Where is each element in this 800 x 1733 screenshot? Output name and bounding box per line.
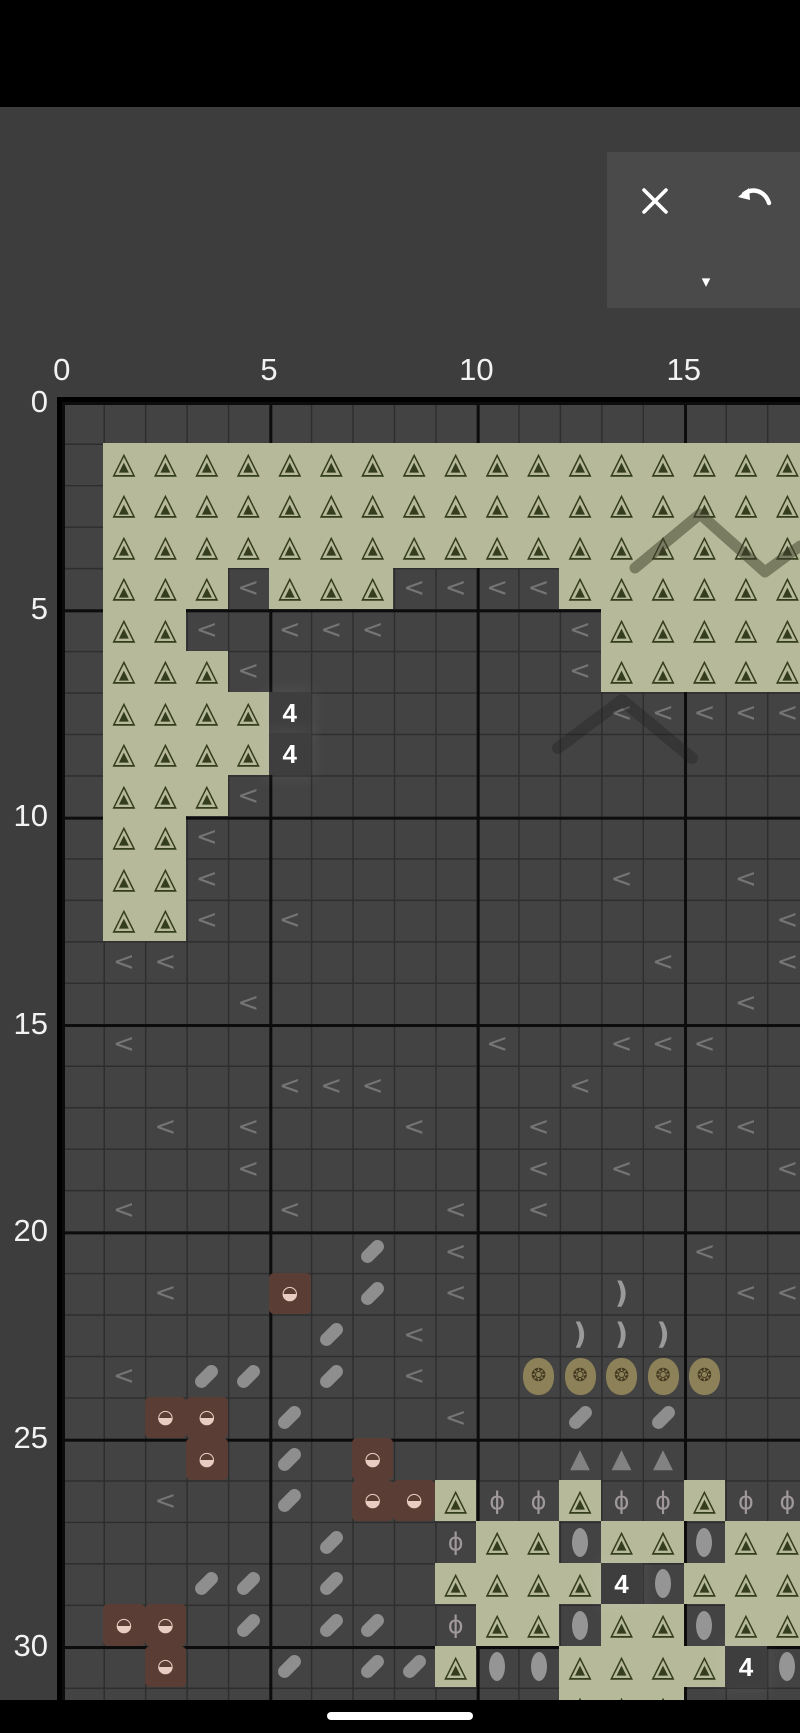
lt-stitch-cell[interactable]: < — [518, 568, 559, 609]
tree-stitch-cell[interactable]: △▲ — [476, 1563, 517, 1604]
tree-stitch-cell[interactable]: △▲ — [684, 485, 725, 526]
tree-stitch-cell[interactable]: △▲ — [393, 443, 434, 484]
phi-stitch-cell[interactable]: ϕ — [435, 1521, 476, 1562]
lt-stitch-cell[interactable]: < — [228, 568, 269, 609]
tree-stitch-cell[interactable]: △▲ — [435, 485, 476, 526]
lt-stitch-cell[interactable]: < — [684, 1231, 725, 1272]
lt-stitch-cell[interactable]: < — [476, 1024, 517, 1065]
pill-stitch-cell[interactable] — [559, 1397, 600, 1438]
lt-stitch-cell[interactable]: < — [228, 651, 269, 692]
gtri-stitch-cell[interactable]: ▲ — [642, 1438, 683, 1479]
column-label: 10 — [444, 352, 508, 388]
tree-stitch-cell[interactable]: △▲ — [145, 899, 186, 940]
home-indicator[interactable] — [327, 1712, 473, 1720]
tree-stitch-cell[interactable]: △▲ — [725, 1521, 766, 1562]
oval-stitch-cell[interactable] — [684, 1521, 725, 1562]
undo-arrow-icon — [734, 186, 774, 221]
basket-stitch-cell[interactable]: ◒ — [269, 1273, 310, 1314]
lt-stitch-cell[interactable]: < — [725, 982, 766, 1023]
tree-stitch-cell[interactable]: △▲ — [559, 1563, 600, 1604]
count-stitch-cell[interactable]: 4 — [601, 1563, 642, 1604]
tree-stitch-cell[interactable]: △▲ — [642, 443, 683, 484]
pill-stitch-cell[interactable] — [311, 1604, 352, 1645]
tree-stitch-cell[interactable]: △▲ — [559, 568, 600, 609]
basket-stitch-cell[interactable]: ◒ — [145, 1646, 186, 1687]
tree-stitch-cell[interactable]: △▲ — [393, 485, 434, 526]
basket-stitch-cell[interactable]: ◒ — [145, 1604, 186, 1645]
pill-stitch-cell[interactable] — [228, 1604, 269, 1645]
flower-stitch-cell[interactable]: ❂ — [559, 1355, 600, 1396]
tree-stitch-cell[interactable]: △▲ — [103, 816, 144, 857]
gtri-stitch-cell[interactable]: ▲ — [559, 1438, 600, 1479]
lt-stitch-cell[interactable]: < — [642, 1024, 683, 1065]
tree-stitch-cell[interactable]: △▲ — [103, 526, 144, 567]
basket-stitch-cell[interactable]: ◒ — [186, 1438, 227, 1479]
lt-stitch-cell[interactable]: < — [145, 1480, 186, 1521]
lt-stitch-cell[interactable]: < — [186, 858, 227, 899]
lt-stitch-cell[interactable]: < — [559, 609, 600, 650]
lt-stitch-cell[interactable]: < — [435, 568, 476, 609]
pill-stitch-cell[interactable] — [228, 1355, 269, 1396]
tree-stitch-cell[interactable]: △▲ — [269, 485, 310, 526]
pill-stitch-cell[interactable] — [269, 1480, 310, 1521]
tree-stitch-cell[interactable]: △▲ — [684, 1646, 725, 1687]
tree-stitch-cell[interactable]: △▲ — [767, 568, 800, 609]
row-label: 15 — [0, 1006, 48, 1042]
tree-stitch-cell[interactable]: △▲ — [642, 526, 683, 567]
lt-stitch-cell[interactable]: < — [684, 1024, 725, 1065]
lt-stitch-cell[interactable]: < — [767, 899, 800, 940]
tree-stitch-cell[interactable]: △▲ — [145, 775, 186, 816]
tree-stitch-cell[interactable]: △▲ — [103, 651, 144, 692]
lt-stitch-cell[interactable]: < — [145, 1107, 186, 1148]
lt-stitch-cell[interactable]: < — [601, 1024, 642, 1065]
pill-stitch-cell[interactable] — [186, 1355, 227, 1396]
tree-stitch-cell[interactable]: △▲ — [186, 485, 227, 526]
lt-stitch-cell[interactable]: < — [269, 1190, 310, 1231]
tree-stitch-cell[interactable]: △▲ — [186, 526, 227, 567]
tree-stitch-cell[interactable]: △▲ — [476, 1604, 517, 1645]
basket-stitch-cell[interactable]: ◒ — [352, 1438, 393, 1479]
flower-stitch-cell[interactable]: ❂ — [684, 1355, 725, 1396]
tree-stitch-cell[interactable]: △▲ — [601, 1646, 642, 1687]
tree-stitch-cell[interactable]: △▲ — [559, 485, 600, 526]
lt-stitch-cell[interactable]: < — [269, 609, 310, 650]
lt-stitch-cell[interactable]: < — [559, 1065, 600, 1106]
tree-stitch-cell[interactable]: △▲ — [103, 899, 144, 940]
tree-stitch-cell[interactable]: △▲ — [601, 526, 642, 567]
phi-stitch-cell[interactable]: ϕ — [476, 1480, 517, 1521]
tree-stitch-cell[interactable]: △▲ — [559, 1646, 600, 1687]
lt-stitch-cell[interactable]: < — [435, 1273, 476, 1314]
tree-stitch-cell[interactable]: △▲ — [435, 1563, 476, 1604]
phi-stitch-cell[interactable]: ϕ — [642, 1480, 683, 1521]
basket-stitch-cell[interactable]: ◒ — [352, 1480, 393, 1521]
status-bar — [0, 0, 800, 107]
lt-stitch-cell[interactable]: < — [601, 1148, 642, 1189]
basket-stitch-cell[interactable]: ◒ — [145, 1397, 186, 1438]
row-label: 30 — [0, 1628, 48, 1664]
pill-stitch-cell[interactable] — [186, 1563, 227, 1604]
collapse-panel-button[interactable]: ▾ — [683, 264, 729, 300]
moon-stitch-cell[interactable]: ) — [601, 1273, 642, 1314]
tree-stitch-cell[interactable]: △▲ — [145, 816, 186, 857]
tree-stitch-cell[interactable]: △▲ — [601, 568, 642, 609]
pill-stitch-cell[interactable] — [352, 1604, 393, 1645]
tree-stitch-cell[interactable]: △▲ — [228, 443, 269, 484]
tree-stitch-cell[interactable]: △▲ — [684, 651, 725, 692]
moon-stitch-cell[interactable]: ) — [642, 1314, 683, 1355]
tree-stitch-cell[interactable]: △▲ — [767, 443, 800, 484]
pill-stitch-cell[interactable] — [393, 1646, 434, 1687]
column-label: 0 — [30, 352, 94, 388]
tree-stitch-cell[interactable]: △▲ — [228, 733, 269, 774]
tree-stitch-cell[interactable]: △▲ — [559, 526, 600, 567]
tree-stitch-cell[interactable]: △▲ — [269, 526, 310, 567]
lt-stitch-cell[interactable]: < — [684, 1107, 725, 1148]
pill-stitch-cell[interactable] — [311, 1355, 352, 1396]
lt-stitch-cell[interactable]: < — [725, 1107, 766, 1148]
tree-stitch-cell[interactable]: △▲ — [684, 526, 725, 567]
row-label: 20 — [0, 1213, 48, 1249]
tree-stitch-cell[interactable]: △▲ — [642, 1521, 683, 1562]
phi-stitch-cell[interactable]: ϕ — [725, 1480, 766, 1521]
tree-stitch-cell[interactable]: △▲ — [186, 568, 227, 609]
lt-stitch-cell[interactable]: < — [684, 692, 725, 733]
basket-stitch-cell[interactable]: ◒ — [103, 1604, 144, 1645]
lt-stitch-cell[interactable]: < — [311, 609, 352, 650]
gesture-nav-bar — [0, 1700, 800, 1733]
tree-stitch-cell[interactable]: △▲ — [103, 609, 144, 650]
count-stitch-cell[interactable]: 4 — [725, 1646, 766, 1687]
tree-stitch-cell[interactable]: △▲ — [642, 1646, 683, 1687]
lt-stitch-cell[interactable]: < — [725, 692, 766, 733]
lt-stitch-cell[interactable]: < — [269, 899, 310, 940]
tree-stitch-cell[interactable]: △▲ — [228, 692, 269, 733]
tree-stitch-cell[interactable]: △▲ — [725, 485, 766, 526]
lt-stitch-cell[interactable]: < — [601, 692, 642, 733]
tree-stitch-cell[interactable]: △▲ — [601, 651, 642, 692]
tree-stitch-cell[interactable]: △▲ — [767, 526, 800, 567]
lt-stitch-cell[interactable]: < — [767, 1273, 800, 1314]
undo-button[interactable] — [725, 178, 783, 228]
pattern-editor-screen: △▲△▲△▲△▲△▲△▲△▲△▲△▲△▲△▲△▲△▲△▲△▲△▲△▲△▲△▲△▲… — [0, 0, 800, 1733]
close-icon — [640, 186, 670, 221]
lt-stitch-cell[interactable]: < — [311, 1065, 352, 1106]
lt-stitch-cell[interactable]: < — [642, 1107, 683, 1148]
lt-stitch-cell[interactable]: < — [393, 1107, 434, 1148]
tree-stitch-cell[interactable]: △▲ — [684, 1563, 725, 1604]
tree-stitch-cell[interactable]: △▲ — [145, 858, 186, 899]
tree-stitch-cell[interactable]: △▲ — [145, 692, 186, 733]
pill-stitch-cell[interactable] — [269, 1397, 310, 1438]
tree-stitch-cell[interactable]: △▲ — [186, 692, 227, 733]
pill-stitch-cell[interactable] — [311, 1314, 352, 1355]
phi-stitch-cell[interactable]: ϕ — [518, 1480, 559, 1521]
tree-stitch-cell[interactable]: △▲ — [103, 733, 144, 774]
lt-stitch-cell[interactable]: < — [518, 1190, 559, 1231]
lt-stitch-cell[interactable]: < — [228, 982, 269, 1023]
tree-stitch-cell[interactable]: △▲ — [145, 443, 186, 484]
lt-stitch-cell[interactable]: < — [559, 651, 600, 692]
tree-stitch-cell[interactable]: △▲ — [518, 1521, 559, 1562]
tree-stitch-cell[interactable]: △▲ — [476, 443, 517, 484]
tree-stitch-cell[interactable]: △▲ — [103, 485, 144, 526]
lt-stitch-cell[interactable]: < — [767, 1148, 800, 1189]
tree-stitch-cell[interactable]: △▲ — [559, 1480, 600, 1521]
lt-stitch-cell[interactable]: < — [435, 1397, 476, 1438]
grid-canvas[interactable]: △▲△▲△▲△▲△▲△▲△▲△▲△▲△▲△▲△▲△▲△▲△▲△▲△▲△▲△▲△▲… — [62, 402, 800, 1733]
lt-stitch-cell[interactable]: < — [393, 1355, 434, 1396]
tree-stitch-cell[interactable]: △▲ — [103, 692, 144, 733]
tree-stitch-cell[interactable]: △▲ — [311, 443, 352, 484]
tree-stitch-cell[interactable]: △▲ — [186, 775, 227, 816]
lt-stitch-cell[interactable]: < — [186, 609, 227, 650]
row-label: 10 — [0, 798, 48, 834]
tree-stitch-cell[interactable]: △▲ — [767, 1521, 800, 1562]
lt-stitch-cell[interactable]: < — [228, 1148, 269, 1189]
lt-stitch-cell[interactable]: < — [103, 1024, 144, 1065]
oval-stitch-cell[interactable] — [518, 1646, 559, 1687]
basket-stitch-cell[interactable]: ◒ — [393, 1480, 434, 1521]
tree-stitch-cell[interactable]: △▲ — [725, 609, 766, 650]
tree-stitch-cell[interactable]: △▲ — [725, 1604, 766, 1645]
tree-stitch-cell[interactable]: △▲ — [435, 443, 476, 484]
oval-stitch-cell[interactable] — [559, 1604, 600, 1645]
flower-stitch-cell[interactable]: ❂ — [601, 1355, 642, 1396]
tree-stitch-cell[interactable]: △▲ — [269, 443, 310, 484]
column-label: 5 — [237, 352, 301, 388]
tree-stitch-cell[interactable]: △▲ — [352, 485, 393, 526]
pill-stitch-cell[interactable] — [352, 1646, 393, 1687]
tree-stitch-cell[interactable]: △▲ — [186, 651, 227, 692]
tree-stitch-cell[interactable]: △▲ — [435, 1646, 476, 1687]
tree-stitch-cell[interactable]: △▲ — [352, 526, 393, 567]
oval-stitch-cell[interactable] — [684, 1604, 725, 1645]
row-label: 25 — [0, 1420, 48, 1456]
tree-stitch-cell[interactable]: △▲ — [352, 443, 393, 484]
tree-stitch-cell[interactable]: △▲ — [767, 485, 800, 526]
tree-stitch-cell[interactable]: △▲ — [642, 609, 683, 650]
lt-stitch-cell[interactable]: < — [352, 1065, 393, 1106]
lt-stitch-cell[interactable]: < — [145, 941, 186, 982]
tree-stitch-cell[interactable]: △▲ — [684, 609, 725, 650]
lt-stitch-cell[interactable]: < — [352, 609, 393, 650]
tree-stitch-cell[interactable]: △▲ — [642, 1604, 683, 1645]
row-label: 5 — [0, 591, 48, 627]
oval-stitch-cell[interactable] — [559, 1521, 600, 1562]
lt-stitch-cell[interactable]: < — [601, 858, 642, 899]
lt-stitch-cell[interactable]: < — [725, 858, 766, 899]
count-stitch-cell[interactable]: 4 — [269, 692, 310, 733]
tree-stitch-cell[interactable]: △▲ — [642, 485, 683, 526]
phi-stitch-cell[interactable]: ϕ — [767, 1480, 800, 1521]
tree-stitch-cell[interactable]: △▲ — [311, 526, 352, 567]
tree-stitch-cell[interactable]: △▲ — [103, 775, 144, 816]
floating-tool-panel: ▾ — [607, 152, 800, 308]
tree-stitch-cell[interactable]: △▲ — [518, 526, 559, 567]
tree-stitch-cell[interactable]: △▲ — [435, 1480, 476, 1521]
phi-stitch-cell[interactable]: ϕ — [601, 1480, 642, 1521]
flower-stitch-cell[interactable]: ❂ — [642, 1355, 683, 1396]
lt-stitch-cell[interactable]: < — [435, 1190, 476, 1231]
lt-stitch-cell[interactable]: < — [393, 568, 434, 609]
pattern-grid: △▲△▲△▲△▲△▲△▲△▲△▲△▲△▲△▲△▲△▲△▲△▲△▲△▲△▲△▲△▲… — [57, 397, 800, 1733]
tree-stitch-cell[interactable]: △▲ — [725, 526, 766, 567]
tree-stitch-cell[interactable]: △▲ — [145, 651, 186, 692]
pill-stitch-cell[interactable] — [352, 1273, 393, 1314]
tree-stitch-cell[interactable]: △▲ — [311, 485, 352, 526]
lt-stitch-cell[interactable]: < — [103, 1190, 144, 1231]
tree-stitch-cell[interactable]: △▲ — [684, 1480, 725, 1521]
column-label: 15 — [652, 352, 716, 388]
tree-stitch-cell[interactable]: △▲ — [186, 443, 227, 484]
lt-stitch-cell[interactable]: < — [518, 1107, 559, 1148]
tree-stitch-cell[interactable]: △▲ — [269, 568, 310, 609]
tree-stitch-cell[interactable]: △▲ — [476, 1521, 517, 1562]
lt-stitch-cell[interactable]: < — [228, 775, 269, 816]
tree-stitch-cell[interactable]: △▲ — [767, 1604, 800, 1645]
oval-stitch-cell[interactable] — [642, 1563, 683, 1604]
tree-stitch-cell[interactable]: △▲ — [103, 443, 144, 484]
caret-down-icon: ▾ — [702, 272, 711, 292]
lt-stitch-cell[interactable]: < — [103, 1355, 144, 1396]
lt-stitch-cell[interactable]: < — [642, 941, 683, 982]
count-stitch-cell[interactable]: 4 — [269, 733, 310, 774]
pill-stitch-cell[interactable] — [311, 1563, 352, 1604]
pill-stitch-cell[interactable] — [311, 1521, 352, 1562]
pill-stitch-cell[interactable] — [228, 1563, 269, 1604]
oval-stitch-cell[interactable] — [476, 1646, 517, 1687]
lt-stitch-cell[interactable]: < — [435, 1231, 476, 1272]
phi-stitch-cell[interactable]: ϕ — [435, 1604, 476, 1645]
gtri-stitch-cell[interactable]: ▲ — [601, 1438, 642, 1479]
tree-stitch-cell[interactable]: △▲ — [642, 651, 683, 692]
lt-stitch-cell[interactable]: < — [642, 692, 683, 733]
tree-stitch-cell[interactable]: △▲ — [518, 1604, 559, 1645]
tree-stitch-cell[interactable]: △▲ — [393, 526, 434, 567]
tree-stitch-cell[interactable]: △▲ — [476, 526, 517, 567]
tree-stitch-cell[interactable]: △▲ — [767, 651, 800, 692]
tree-stitch-cell[interactable]: △▲ — [601, 485, 642, 526]
moon-stitch-cell[interactable]: ) — [559, 1314, 600, 1355]
tree-stitch-cell[interactable]: △▲ — [311, 568, 352, 609]
tree-stitch-cell[interactable]: △▲ — [352, 568, 393, 609]
lt-stitch-cell[interactable]: < — [269, 1065, 310, 1106]
close-button[interactable] — [629, 178, 681, 228]
lt-stitch-cell[interactable]: < — [725, 1273, 766, 1314]
tree-stitch-cell[interactable]: △▲ — [228, 485, 269, 526]
tree-stitch-cell[interactable]: △▲ — [518, 443, 559, 484]
tree-stitch-cell[interactable]: △▲ — [725, 1563, 766, 1604]
tree-stitch-cell[interactable]: △▲ — [518, 1563, 559, 1604]
tree-stitch-cell[interactable]: △▲ — [145, 526, 186, 567]
tree-stitch-cell[interactable]: △▲ — [476, 485, 517, 526]
moon-stitch-cell[interactable]: ) — [601, 1314, 642, 1355]
tree-stitch-cell[interactable]: △▲ — [518, 485, 559, 526]
tree-stitch-cell[interactable]: △▲ — [684, 443, 725, 484]
tree-stitch-cell[interactable]: △▲ — [559, 443, 600, 484]
lt-stitch-cell[interactable]: < — [767, 692, 800, 733]
tree-stitch-cell[interactable]: △▲ — [601, 443, 642, 484]
tree-stitch-cell[interactable]: △▲ — [145, 609, 186, 650]
pill-stitch-cell[interactable] — [642, 1397, 683, 1438]
tree-stitch-cell[interactable]: △▲ — [684, 568, 725, 609]
tree-stitch-cell[interactable]: △▲ — [642, 568, 683, 609]
lt-stitch-cell[interactable]: < — [186, 816, 227, 857]
tree-stitch-cell[interactable]: △▲ — [601, 1521, 642, 1562]
basket-stitch-cell[interactable]: ◒ — [186, 1397, 227, 1438]
lt-stitch-cell[interactable]: < — [393, 1314, 434, 1355]
flower-stitch-cell[interactable]: ❂ — [518, 1355, 559, 1396]
tree-stitch-cell[interactable]: △▲ — [601, 1604, 642, 1645]
tree-stitch-cell[interactable]: △▲ — [725, 568, 766, 609]
lt-stitch-cell[interactable]: < — [186, 899, 227, 940]
tree-stitch-cell[interactable]: △▲ — [103, 858, 144, 899]
lt-stitch-cell[interactable]: < — [145, 1273, 186, 1314]
tree-stitch-cell[interactable]: △▲ — [725, 443, 766, 484]
tree-stitch-cell[interactable]: △▲ — [103, 568, 144, 609]
tree-stitch-cell[interactable]: △▲ — [601, 609, 642, 650]
tree-stitch-cell[interactable]: △▲ — [228, 526, 269, 567]
tree-stitch-cell[interactable]: △▲ — [145, 733, 186, 774]
row-label: 0 — [0, 384, 48, 420]
pill-stitch-cell[interactable] — [269, 1646, 310, 1687]
lt-stitch-cell[interactable]: < — [476, 568, 517, 609]
lt-stitch-cell[interactable]: < — [518, 1148, 559, 1189]
lt-stitch-cell[interactable]: < — [767, 941, 800, 982]
tree-stitch-cell[interactable]: △▲ — [435, 526, 476, 567]
tree-stitch-cell[interactable]: △▲ — [145, 568, 186, 609]
tree-stitch-cell[interactable]: △▲ — [145, 485, 186, 526]
tree-stitch-cell[interactable]: △▲ — [725, 651, 766, 692]
tree-stitch-cell[interactable]: △▲ — [767, 609, 800, 650]
pill-stitch-cell[interactable] — [352, 1231, 393, 1272]
lt-stitch-cell[interactable]: < — [228, 1107, 269, 1148]
oval-stitch-cell[interactable] — [767, 1646, 800, 1687]
pill-stitch-cell[interactable] — [269, 1438, 310, 1479]
tree-stitch-cell[interactable]: △▲ — [186, 733, 227, 774]
lt-stitch-cell[interactable]: < — [103, 941, 144, 982]
tree-stitch-cell[interactable]: △▲ — [767, 1563, 800, 1604]
